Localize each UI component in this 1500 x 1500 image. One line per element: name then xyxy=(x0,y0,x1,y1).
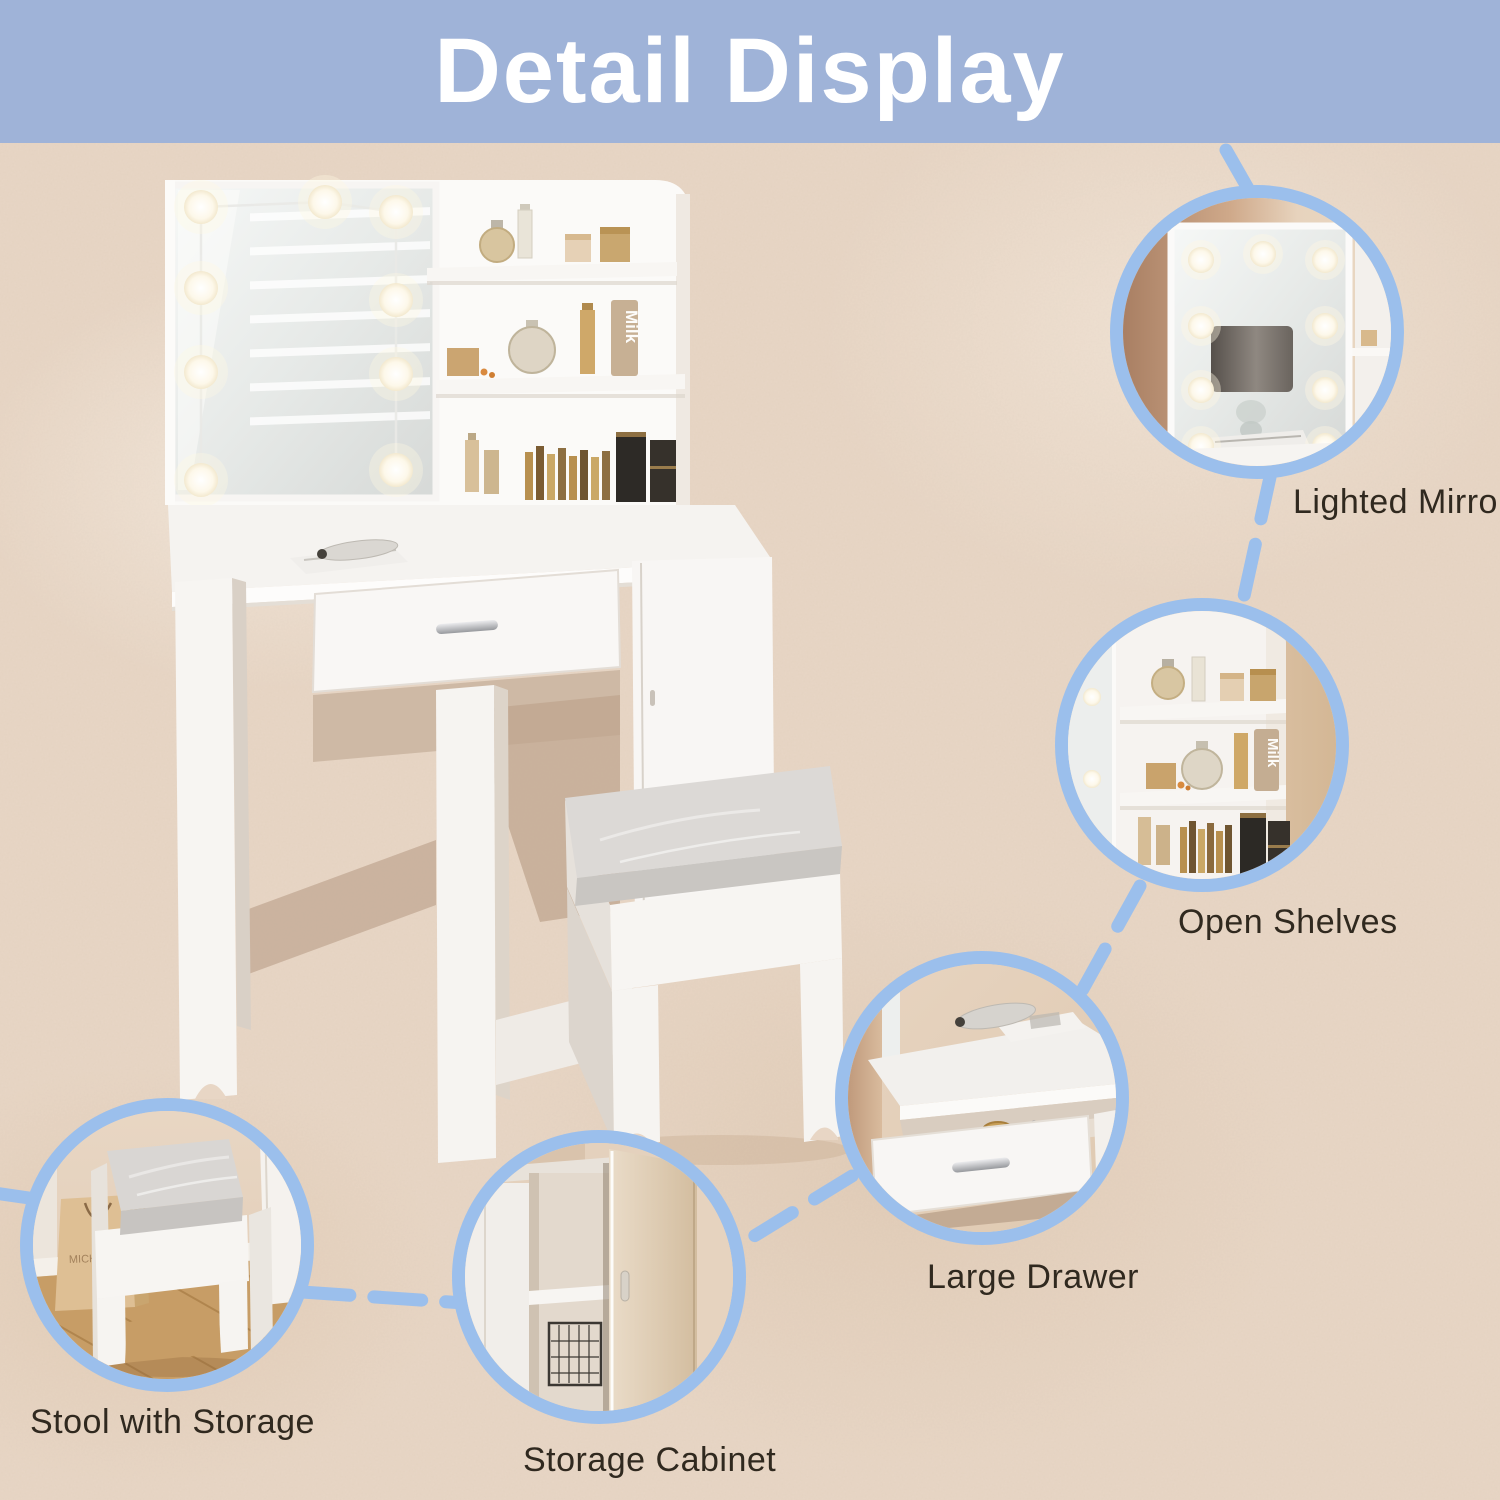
stool xyxy=(565,766,850,1165)
page-title: Detail Display xyxy=(434,19,1065,124)
callout-circle-large-drawer xyxy=(835,951,1129,1245)
cabinet-handle xyxy=(650,690,655,706)
desk-left-panel xyxy=(175,578,251,1100)
label-large-drawer: Large Drawer xyxy=(927,1258,1139,1297)
callout-circle-storage-cabinet xyxy=(452,1130,746,1424)
lighted-mirror-closeup xyxy=(1123,198,1391,466)
callout-circle-stool: MICHAE xyxy=(20,1098,314,1392)
door-handle xyxy=(621,1271,629,1301)
under-desk-shadows xyxy=(246,670,620,975)
open-shelves-closeup: Milk xyxy=(1068,611,1336,879)
milk-bottle-label: Milk xyxy=(622,310,641,344)
stool-closeup: MICHAE xyxy=(33,1111,301,1379)
lamp-shade-reflection xyxy=(1211,326,1293,392)
label-lighted-mirror: Lighted Mirror xyxy=(1293,483,1500,522)
callout-circle-open-shelves: Milk xyxy=(1055,598,1349,892)
storage-cabinet-closeup xyxy=(465,1143,733,1411)
label-open-shelves: Open Shelves xyxy=(1178,903,1398,942)
product-infographic: Detail Display xyxy=(0,0,1500,1500)
title-banner: Detail Display xyxy=(0,0,1500,143)
label-stool-with-storage: Stool with Storage xyxy=(30,1403,315,1442)
label-storage-cabinet: Storage Cabinet xyxy=(523,1441,776,1480)
large-drawer-closeup xyxy=(848,964,1116,1232)
callout-circle-lighted-mirror xyxy=(1110,185,1404,479)
desk-middle-support xyxy=(436,685,510,1163)
milk-bottle-label: Milk xyxy=(1264,738,1281,768)
vanity-set-photo: Milk xyxy=(60,150,960,1170)
